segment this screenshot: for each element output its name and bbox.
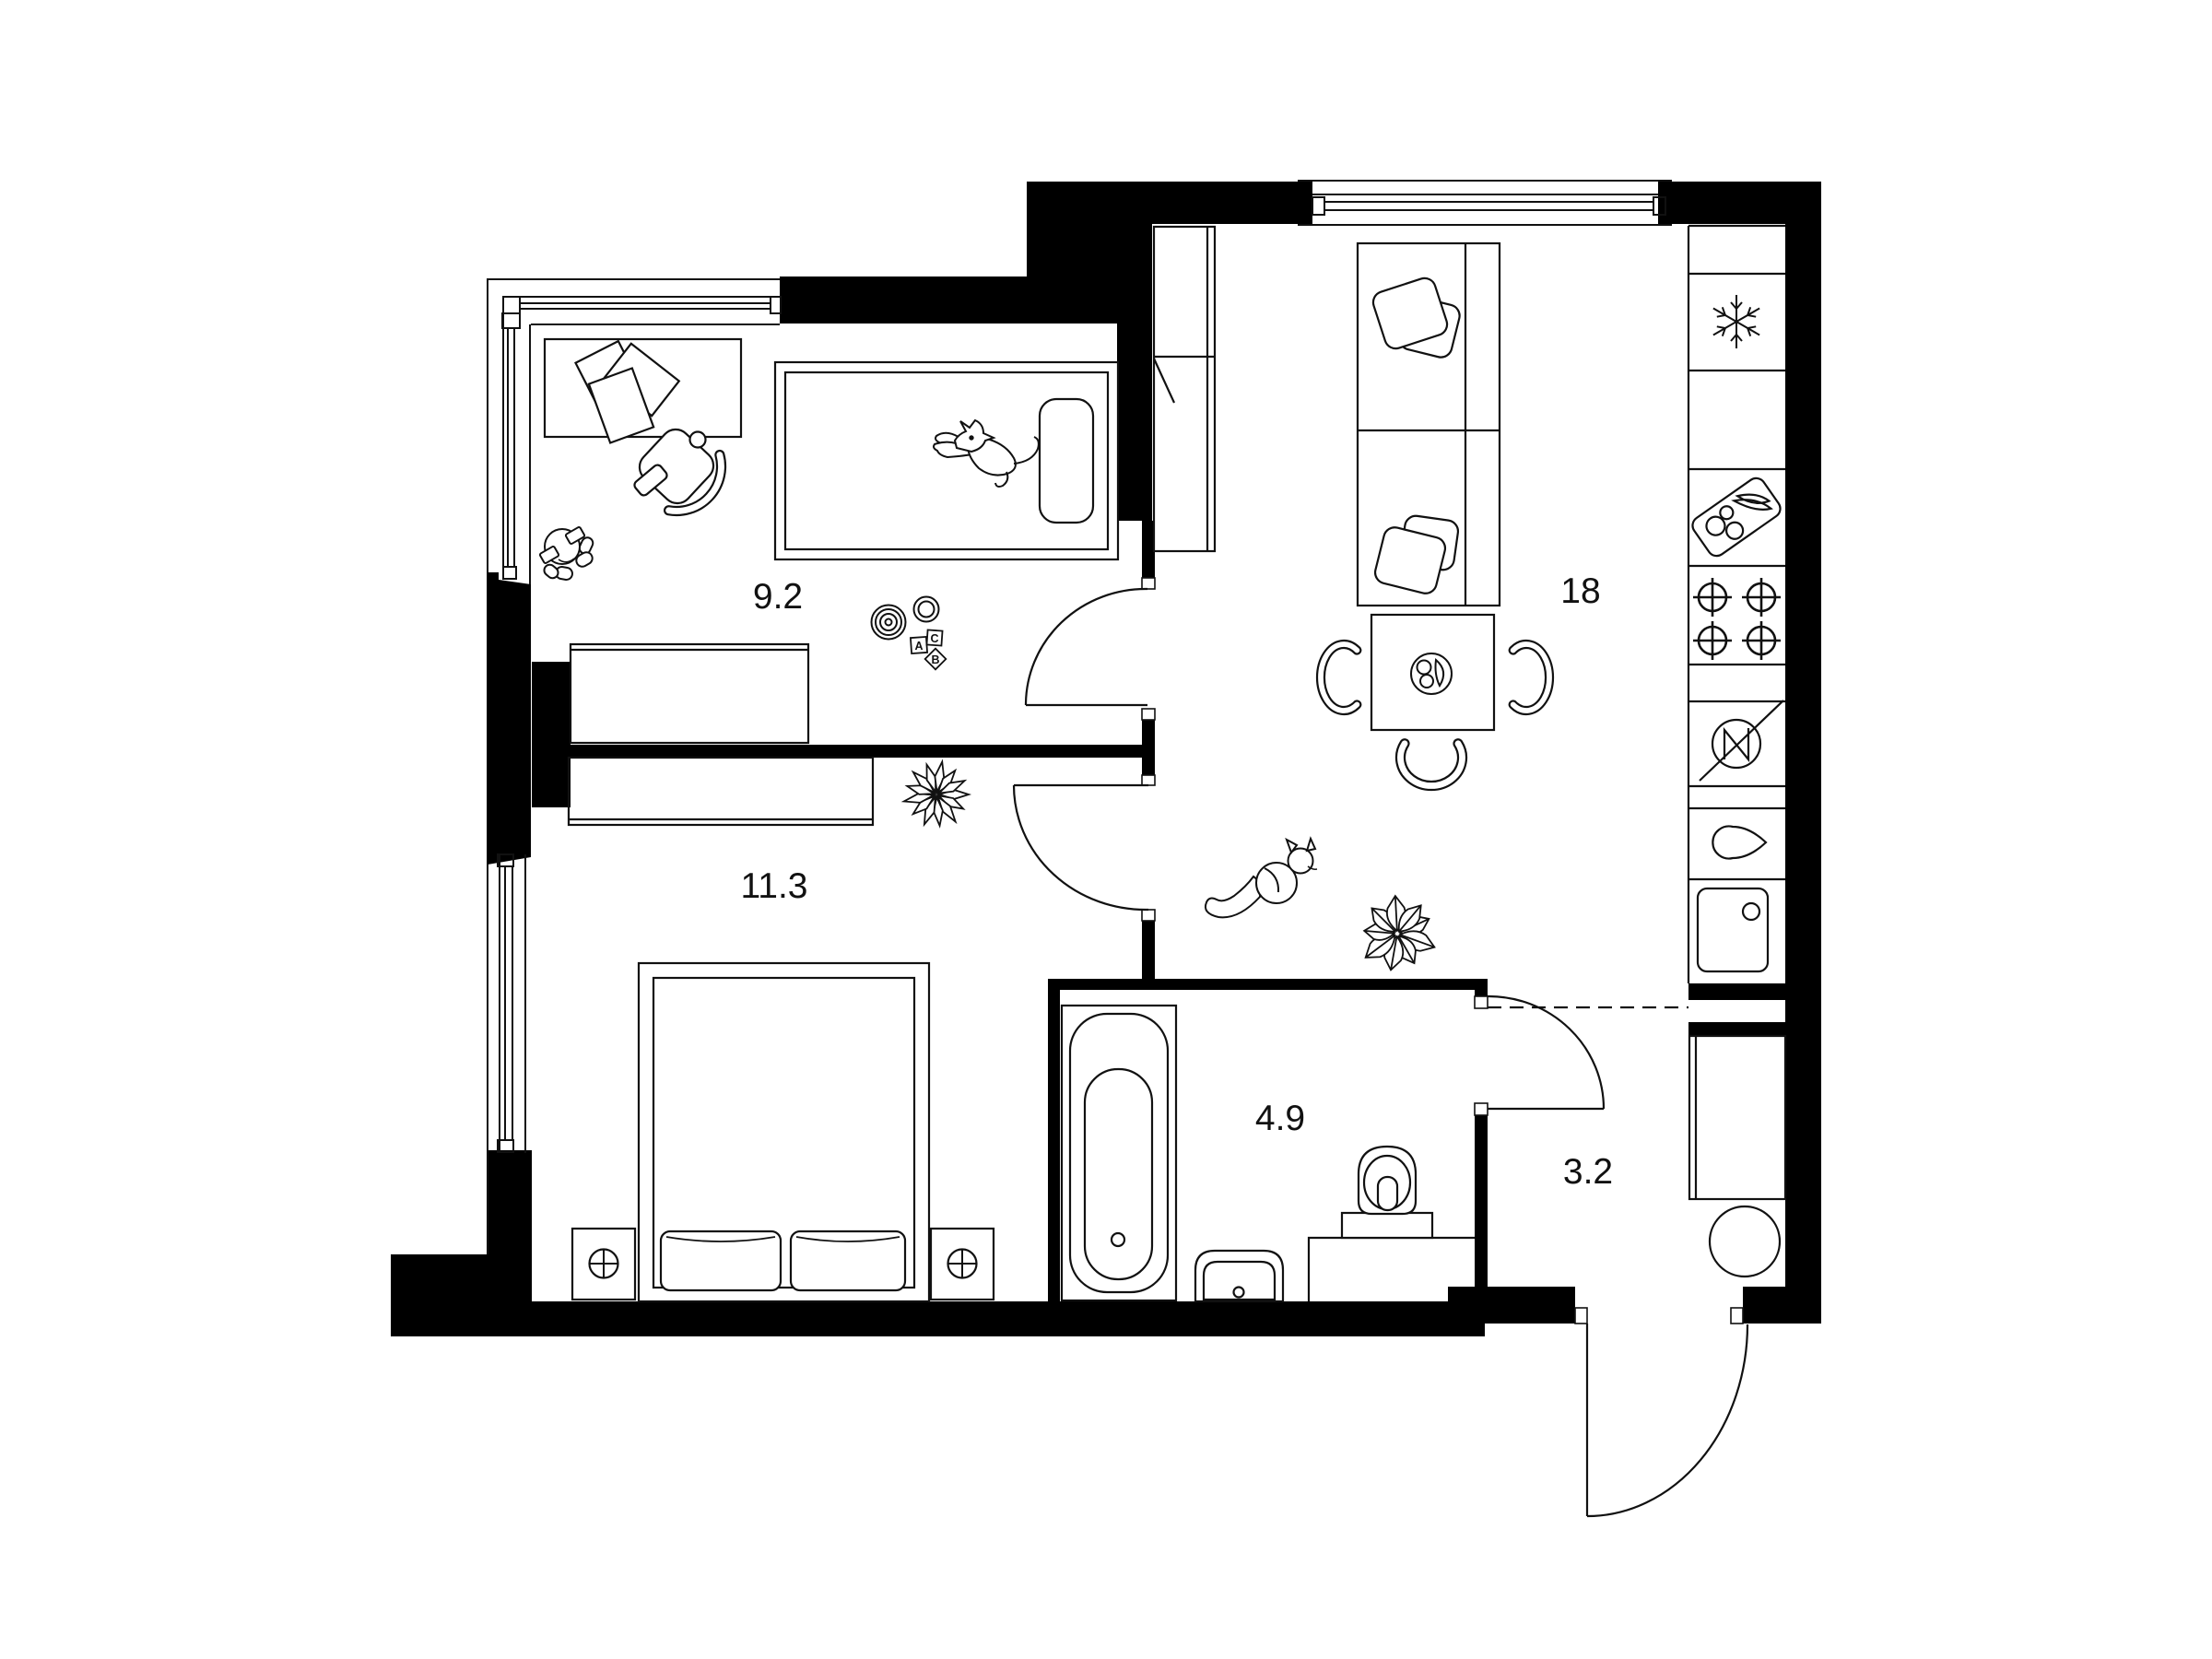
svg-text:C: C	[930, 632, 938, 645]
svg-text:4.9: 4.9	[1255, 1099, 1305, 1138]
svg-text:18: 18	[1560, 571, 1600, 611]
svg-text:B: B	[931, 653, 939, 666]
svg-text:3.2: 3.2	[1563, 1152, 1613, 1192]
svg-text:A: A	[914, 640, 923, 653]
svg-text:9.2: 9.2	[753, 577, 803, 617]
svg-text:11.3: 11.3	[740, 866, 807, 906]
